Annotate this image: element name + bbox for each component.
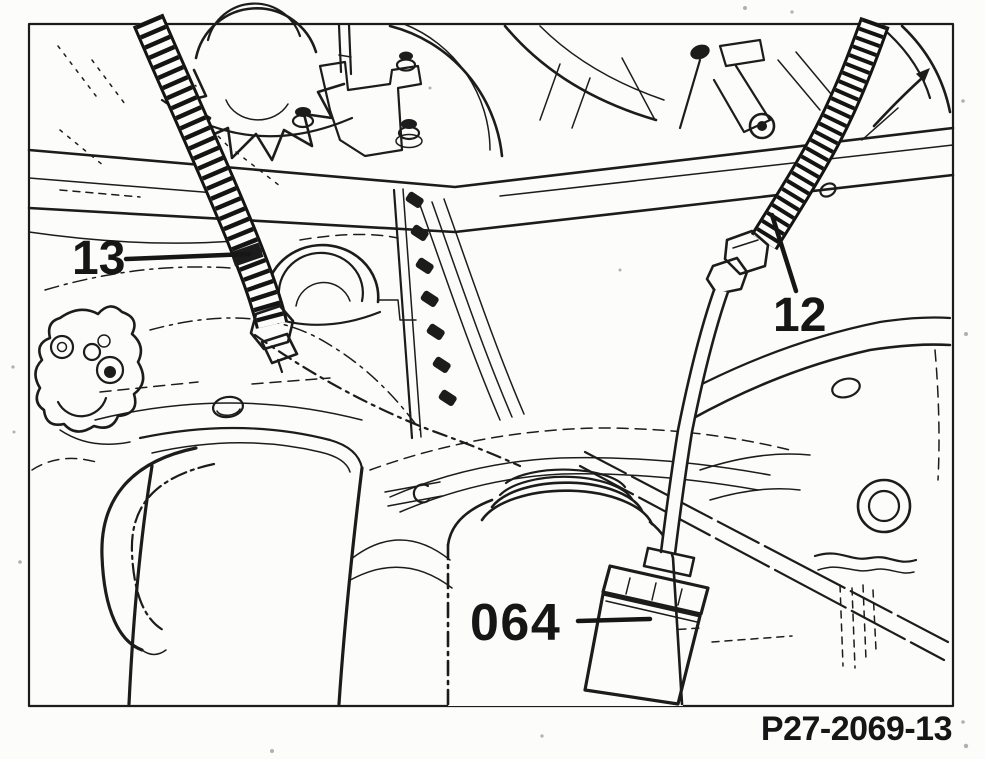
callout-13-label: 13 [72, 232, 125, 285]
figure-canvas: 13 12 064 P27-2069-13 [0, 0, 985, 759]
catch-jug [102, 428, 362, 704]
subframe-right [690, 318, 950, 573]
callout-13: 13 [72, 232, 249, 285]
callout-064-label: 064 [470, 594, 561, 652]
mounting-bracket-top [293, 52, 422, 157]
callout-12-label: 12 [773, 289, 826, 342]
hose-12-nut [707, 231, 768, 294]
figure-ref-label: P27-2069-13 [761, 710, 952, 748]
hose-12-tube [661, 290, 728, 554]
filter-housing [342, 428, 790, 706]
corrugated-hose-13 [148, 20, 297, 372]
engine-mount-bracket [32, 306, 143, 470]
fan-shroud [505, 26, 836, 138]
pan-bolts [405, 191, 458, 407]
callout-13-leader [126, 254, 249, 259]
callout-12: 12 [772, 215, 826, 342]
clamp-bracket [385, 482, 442, 506]
callout-064-leader [578, 619, 650, 621]
manual-page: 13 12 064 P27-2069-13 [0, 0, 985, 759]
direction-arrow [874, 68, 930, 126]
